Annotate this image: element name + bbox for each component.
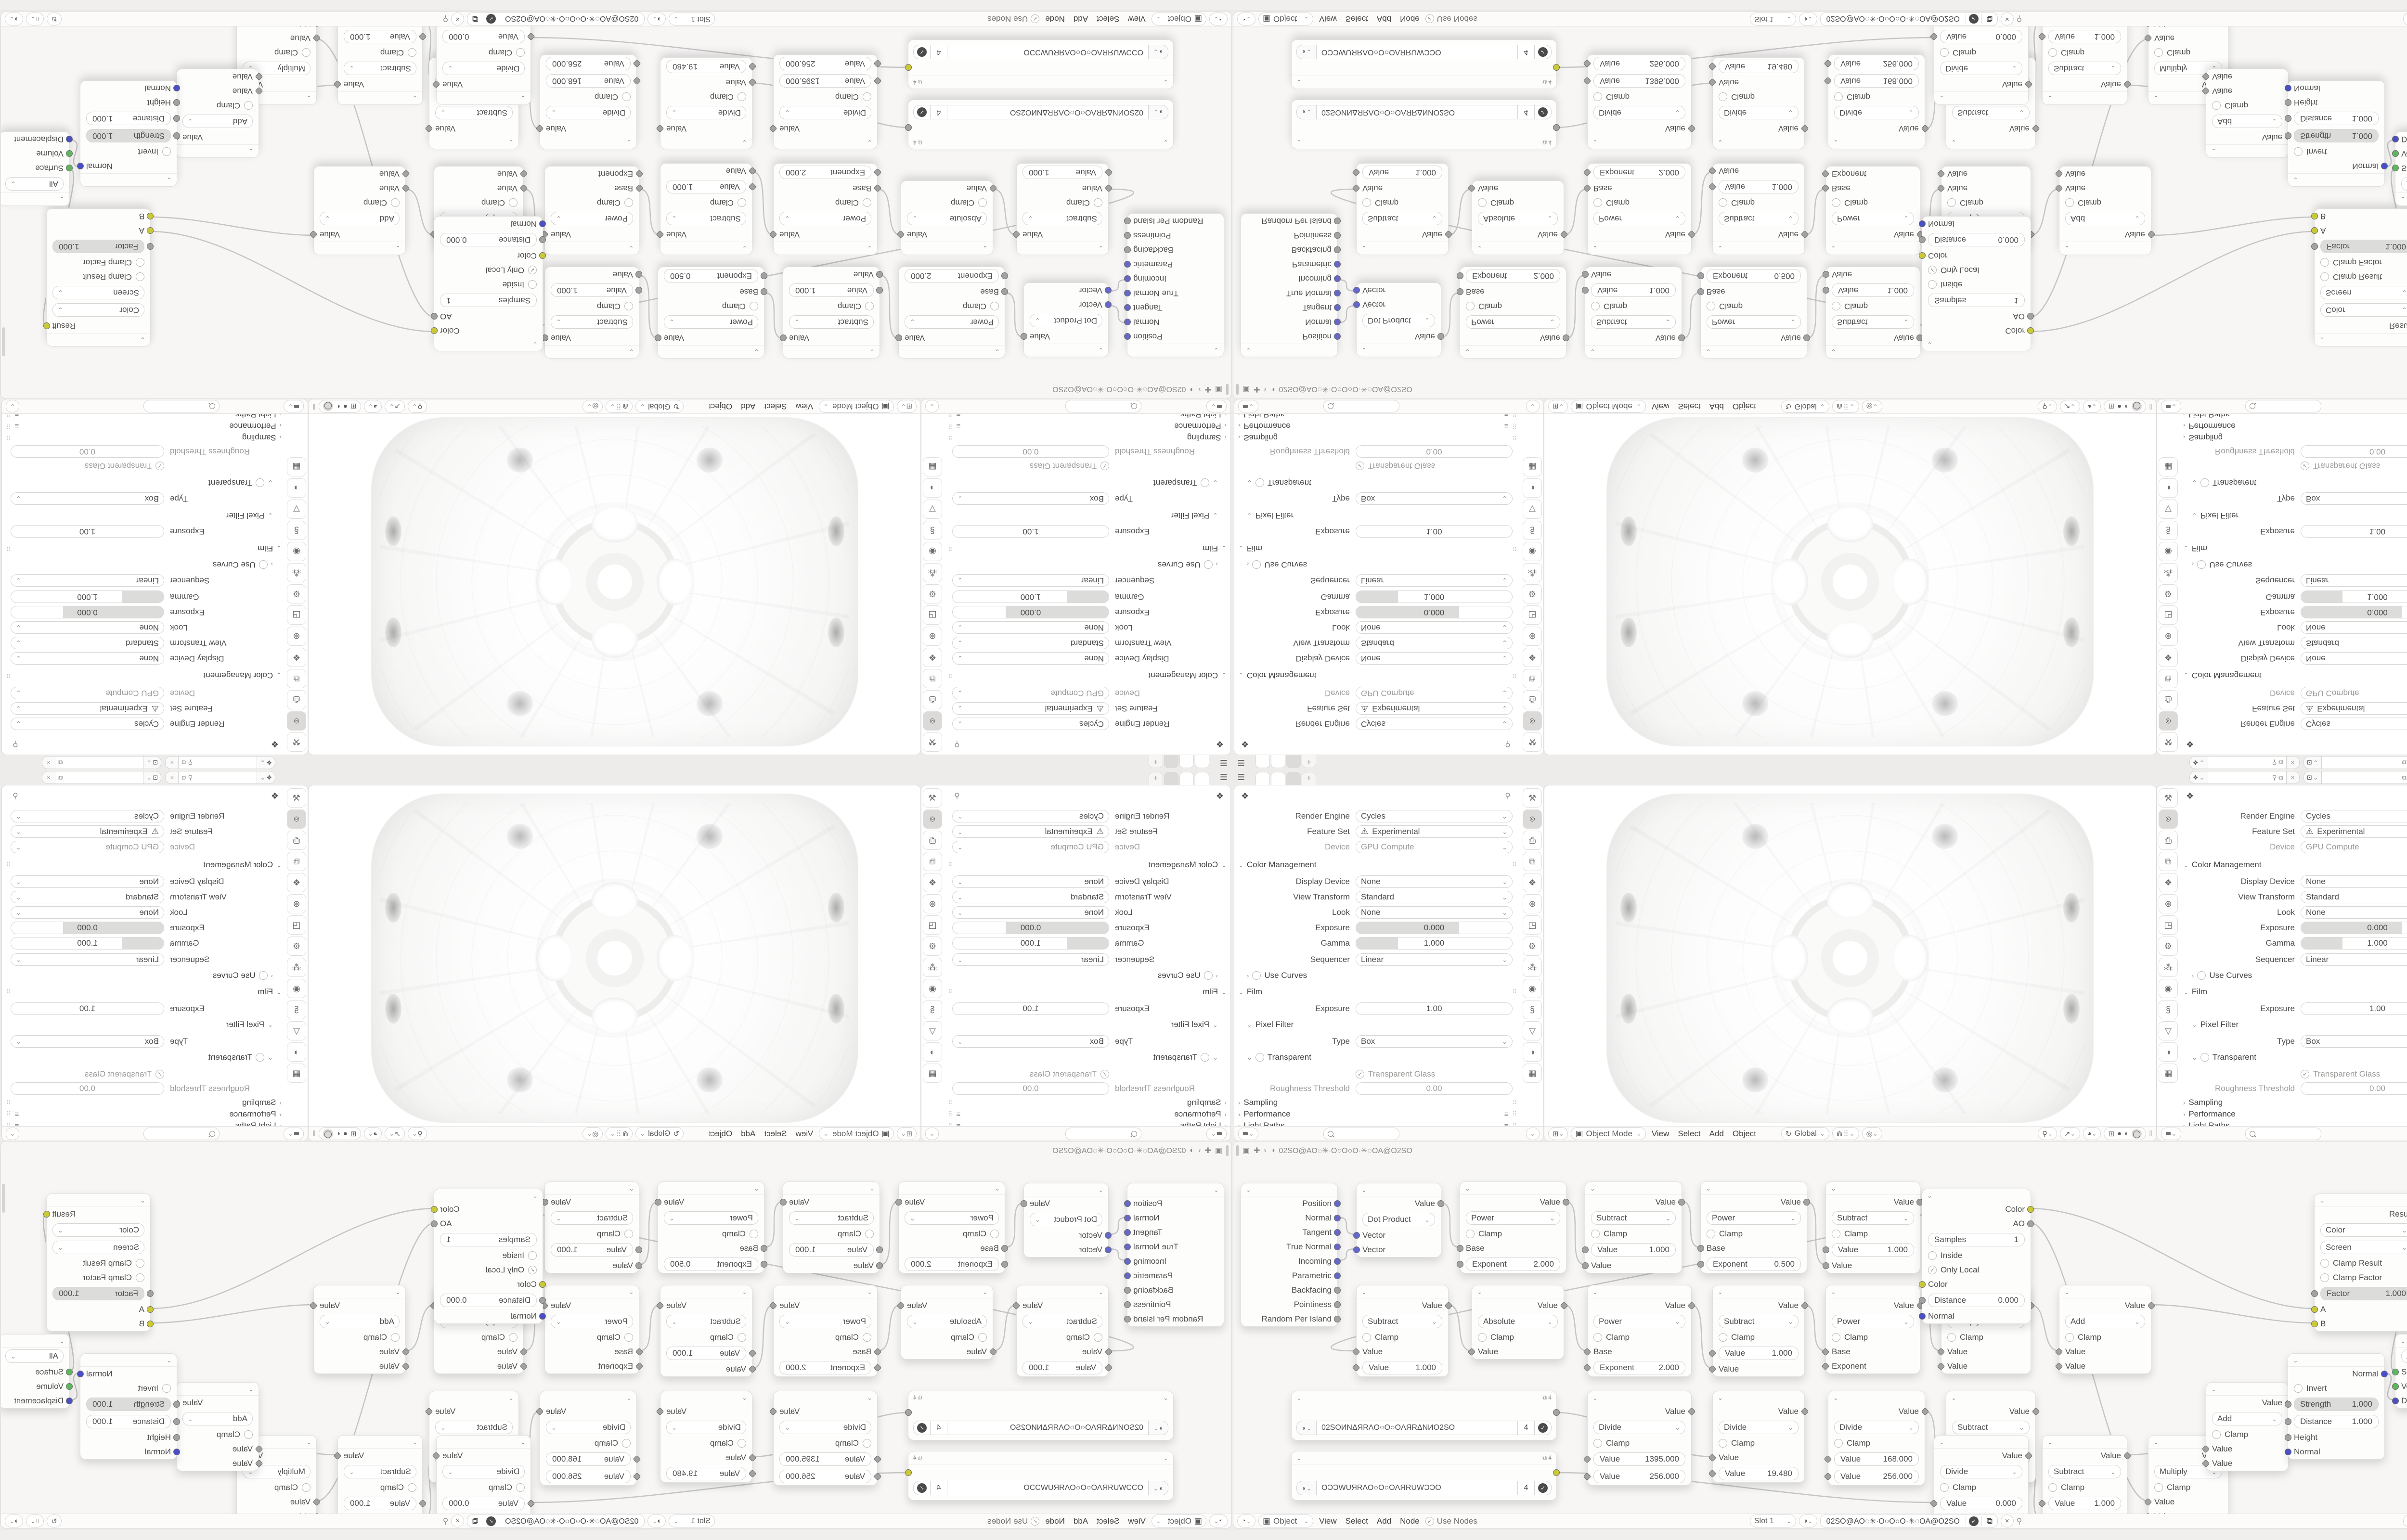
menu-node[interactable]: Node [1042, 14, 1068, 24]
node-collapse-icon[interactable]: ⌄ [869, 1185, 875, 1192]
render-engine-select[interactable]: Cycles⌄ [952, 718, 1109, 730]
node-math-divide-2[interactable]: ⌄ValueDivide⌄ClampValueValue19.480 [660, 57, 752, 149]
properties-tab-scene[interactable]: ❖ [923, 648, 942, 667]
properties-tab-render[interactable]: ⌾ [1523, 809, 1542, 829]
add-workspace-button[interactable]: + [1302, 755, 1316, 768]
value-field[interactable]: Factor1.000 [52, 240, 144, 253]
socket-value-left[interactable] [1697, 288, 1704, 295]
proportional-editing-button[interactable]: ◎⌄ [1862, 400, 1882, 413]
use-nodes-checkbox[interactable] [1425, 15, 1434, 24]
clamp-checkbox[interactable] [1832, 1333, 1840, 1342]
transparent-checkbox[interactable] [256, 478, 264, 487]
socket-value-left[interactable] [633, 1473, 641, 1481]
gizmos-button[interactable]: ↗⌄ [2060, 1127, 2080, 1140]
clamp-checkbox[interactable] [1466, 302, 1475, 310]
snapping-button[interactable]: ⌗⌄ [26, 13, 44, 26]
socket-vector-right[interactable] [1334, 333, 1341, 340]
clamp-checkbox[interactable] [863, 1439, 871, 1448]
fake-user-shield-button[interactable]: ✓ [917, 47, 927, 57]
socket-value-right[interactable] [656, 1302, 664, 1310]
node-collapse-icon[interactable]: ⌄ [1831, 349, 1836, 355]
socket-value-right[interactable] [1553, 1409, 1560, 1416]
clamp-checkbox[interactable] [622, 1439, 631, 1448]
socket-normal-left[interactable] [2392, 1398, 2399, 1404]
filter-button[interactable]: ⌄ [1206, 1128, 1227, 1140]
node-math-absolute[interactable]: ⌄ValueAbsolute⌄ClampValue [901, 180, 993, 255]
socket-green-left[interactable] [66, 150, 73, 157]
socket-value-left[interactable] [1822, 184, 1830, 192]
operation-select[interactable]: Divide⌄ [1719, 1421, 1799, 1434]
gamma-slider[interactable]: 1.000 [1356, 937, 1513, 950]
properties-tab-material[interactable]: ◑ [1523, 478, 1542, 498]
pixel-filter-panel[interactable]: ⌄Pixel Filter [2183, 509, 2407, 522]
socket-value-left[interactable] [1824, 1455, 1832, 1463]
unlink-material-button[interactable]: × [2001, 1514, 2014, 1527]
socket-value-right[interactable] [1124, 218, 1131, 224]
performance-panel[interactable]: ›Performance≡⠿ [2183, 1109, 2407, 1119]
properties-tab-view-layer[interactable]: ⧉ [1523, 669, 1542, 688]
socket-value-left[interactable] [1582, 1246, 1589, 1253]
socket-color-right[interactable] [43, 1211, 50, 1218]
shader-type-select[interactable]: ▣Object⌄ [1152, 1514, 1206, 1527]
use-curves-checkbox[interactable] [1204, 971, 1213, 980]
clamp-checkbox[interactable] [2212, 1430, 2221, 1439]
node-math-subtract-6[interactable]: ⌄ValueSubtract⌄ClampValue1.000Value [337, 13, 423, 105]
view-layer-selector[interactable]: ⊡⌄ ⧉ × [42, 757, 161, 769]
operation-select[interactable]: Divide⌄ [1940, 62, 2022, 75]
mode-select[interactable]: ▣Object Mode⌄ [819, 1127, 893, 1140]
node-vector-math-dot-product[interactable]: ⌄ValueDot Product⌄VectorVector [1023, 282, 1109, 357]
clamp-checkbox[interactable] [2154, 48, 2163, 57]
properties-tab-output[interactable]: ⎙ [1523, 831, 1542, 850]
node-collapse-icon[interactable]: ⌄ [412, 1439, 417, 1445]
node-math-power-3[interactable]: ⌄ValuePower⌄ClampBaseExponent2.000 [1587, 1285, 1692, 1377]
fake-user-shield-button[interactable]: ✓ [486, 1516, 496, 1526]
properties-tab-object[interactable]: ◳ [923, 605, 942, 625]
operation-select[interactable]: Subtract⌄ [1022, 1315, 1102, 1328]
properties-tab-active-tool[interactable]: ⚒ [2159, 732, 2178, 752]
socket-vector-left[interactable] [1353, 301, 1360, 308]
display-device-select[interactable]: None⌄ [1356, 652, 1513, 665]
properties-tab-scene[interactable]: ❖ [2159, 648, 2178, 667]
socket-vector-right[interactable] [1124, 290, 1131, 296]
node-group-selector[interactable]: ◑⌄02SOИNΔЯRΛO○O○OΛЯRΔNИO2SO4✓ [913, 1421, 1168, 1435]
node-collapse-icon[interactable]: ⌄ [626, 140, 632, 146]
node-math-divide-3[interactable]: ⌄ValueDivide⌄ClampValue168.000Value256.0… [540, 1391, 637, 1486]
node-collapse-icon[interactable]: ⌄ [754, 349, 759, 355]
socket-green-left[interactable] [66, 1369, 73, 1375]
clamp-checkbox[interactable] [1947, 198, 1956, 207]
operation-select[interactable]: Add⌄ [2212, 1412, 2282, 1425]
properties-tab-render[interactable]: ⌾ [2159, 711, 2178, 731]
node-vector-math-dot-product[interactable]: ⌄ValueDot Product⌄VectorVector [1356, 1183, 1441, 1258]
value-field[interactable]: Value1.000 [789, 1243, 874, 1257]
properties-tab-object-data[interactable]: ▽ [923, 500, 942, 519]
node-ambient-occlusion[interactable]: ⌄ColorAOSamples1InsideOnly LocalColorDis… [434, 1189, 543, 1324]
transparent-checkbox[interactable] [1201, 478, 1209, 487]
socket-value-left[interactable] [874, 168, 882, 177]
menu-add[interactable]: Add [1707, 402, 1727, 411]
properties-tab-scene[interactable]: ❖ [2159, 873, 2178, 892]
shader-type-select[interactable]: ▣Object⌄ [1258, 1514, 1313, 1527]
menu-select[interactable]: Select [1675, 1129, 1703, 1139]
socket-color-left[interactable] [539, 252, 546, 259]
clamp-checkbox[interactable] [1478, 1333, 1487, 1342]
value-field[interactable]: Exponent0.500 [664, 269, 758, 282]
properties-tab-texture[interactable]: ▦ [2159, 457, 2178, 476]
properties-search-input[interactable] [1065, 400, 1141, 413]
invert-checkbox[interactable] [2294, 147, 2303, 156]
node-collapse-icon[interactable]: ⌄ [1833, 1395, 1838, 1401]
node-collapse-icon[interactable]: ⌄ [1163, 1395, 1168, 1401]
properties-tab-physics[interactable]: ◉ [1523, 542, 1542, 561]
node-ambient-occlusion[interactable]: ⌄ColorAOSamples1InsideOnly LocalColorDis… [434, 216, 543, 351]
socket-value-left[interactable] [876, 1262, 883, 1269]
socket-value-left[interactable] [876, 1246, 883, 1253]
clamp-checkbox[interactable] [2065, 1333, 2074, 1342]
operation-select[interactable]: Divide⌄ [1834, 1421, 1919, 1434]
gamma-slider[interactable]: 1.000 [2301, 590, 2407, 603]
use-curves-checkbox[interactable] [259, 560, 268, 569]
node-collapse-icon[interactable]: ⌄ [2153, 1439, 2159, 1445]
properties-tab-modifiers[interactable]: ⚙ [2159, 584, 2178, 603]
node-math-subtract-4[interactable]: ⌄ValueSubtract⌄ClampValue1.000Value [1712, 163, 1805, 255]
exposure-slider[interactable]: 0.000 [11, 606, 164, 618]
snapping-button[interactable]: ⋒⁞⁞⌄ [606, 400, 633, 413]
socket-value-left[interactable] [2038, 1500, 2046, 1508]
gamma-slider[interactable]: 1.000 [11, 590, 164, 603]
value-field[interactable]: Exponent2.000 [1593, 1361, 1685, 1374]
transparent-panel[interactable]: ⌄Transparent [6, 476, 282, 489]
editor-type-button[interactable]: ⊞⌄ [1548, 1127, 1568, 1140]
properties-tab-constraints[interactable]: § [923, 1000, 942, 1019]
film-exposure-field[interactable]: 1.00 [952, 525, 1109, 538]
value-field[interactable]: Value1.000 [1591, 1243, 1676, 1257]
menu-add[interactable]: Add [1071, 14, 1091, 24]
pixel-filter-panel[interactable]: ⌄Pixel Filter [947, 509, 1227, 522]
menu-object[interactable]: Object [706, 1129, 735, 1139]
only-local-checkbox[interactable] [528, 266, 537, 274]
pin-icon[interactable]: ⚲ [2017, 1516, 2022, 1526]
node-math-add-1[interactable]: ⌄ValueAdd⌄ClampValueValue [313, 1285, 406, 1374]
socket-value-left[interactable] [749, 78, 757, 87]
properties-tab-particles[interactable]: ⁂ [2159, 563, 2178, 582]
feature-set-select[interactable]: ⚠Experimental⌄ [952, 825, 1109, 838]
socket-value-left[interactable] [749, 167, 757, 175]
socket-value-left[interactable] [1582, 287, 1589, 294]
value-field[interactable]: Distance0.000 [1928, 1294, 2025, 1307]
socket-vector-right[interactable] [1124, 333, 1131, 340]
light-paths-panel[interactable]: ›Light Paths≡⠿ [2183, 1120, 2407, 1126]
roughness-threshold-field[interactable]: 0.00 [11, 1082, 164, 1095]
socket-vector-right[interactable] [1334, 261, 1341, 268]
properties-tab-render[interactable]: ⌾ [923, 711, 942, 731]
properties-tab-texture[interactable]: ▦ [923, 457, 942, 476]
socket-value-left[interactable] [1697, 272, 1704, 279]
node-collapse-icon[interactable]: ⌄ [412, 95, 417, 102]
node-collapse-icon[interactable]: ⌄ [1246, 1187, 1251, 1193]
operation-select[interactable]: Add⌄ [320, 1315, 400, 1328]
display-device-select[interactable]: None⌄ [952, 652, 1109, 665]
copy-material-button[interactable]: ⧉ [1981, 1516, 1997, 1526]
filter-button[interactable]: ⌄ [1238, 1128, 1258, 1140]
socket-value-right[interactable] [656, 125, 664, 133]
socket-value-right[interactable] [1801, 1302, 1809, 1310]
node-math-add-2[interactable]: ⌄ValueAdd⌄ClampValueValue [2206, 1382, 2289, 1471]
node-collapse-icon[interactable]: ⌄ [867, 1289, 872, 1295]
socket-value-left[interactable] [173, 115, 180, 122]
value-field[interactable]: Distance1.000 [86, 1415, 171, 1428]
socket-value-left[interactable] [874, 184, 882, 192]
properties-options-button[interactable]: ⌄ [1526, 400, 1540, 413]
socket-value-left[interactable] [1708, 78, 1717, 87]
value-field[interactable]: Value0.000 [442, 30, 525, 43]
socket-value-left[interactable] [635, 184, 644, 192]
film-exposure-field[interactable]: 1.00 [11, 525, 164, 538]
socket-value-left[interactable] [635, 1246, 642, 1253]
preset-list-icon[interactable]: ≡ [957, 422, 961, 430]
node-node-group-2[interactable]: ⌄⧉ 4◑⌄OƆƆWUЯRΛO○O○OΛЯRUWƆƆO4✓ [908, 39, 1174, 89]
operation-select[interactable]: All⌄ [5, 177, 64, 191]
fake-user-shield-button[interactable]: ✓ [1538, 1423, 1548, 1433]
value-field[interactable]: Value256.000 [1593, 57, 1685, 70]
view-transform-select[interactable]: Standard⌄ [11, 637, 164, 649]
node-collapse-icon[interactable]: ⌄ [1939, 1439, 1944, 1445]
properties-tab-object[interactable]: ◳ [1523, 915, 1542, 935]
menu-node[interactable]: Node [1397, 14, 1423, 24]
exposure-slider[interactable]: 0.000 [2301, 606, 2407, 618]
clamp-checkbox[interactable] [408, 48, 416, 57]
browse-material-button[interactable]: ◑⌄ [647, 1514, 666, 1527]
socket-vector-right[interactable] [1334, 290, 1341, 296]
properties-tab-active-tool[interactable]: ⚒ [287, 788, 306, 808]
operation-select[interactable]: Subtract⌄ [344, 1465, 416, 1478]
value-field[interactable]: Exponent2.000 [905, 269, 999, 282]
socket-value-right[interactable] [2148, 1302, 2156, 1310]
view-layer-selector[interactable]: ⊡⌄ ⧉ × [42, 771, 161, 783]
clamp-checkbox[interactable] [750, 302, 758, 310]
clamp-checkbox[interactable] [1591, 1230, 1600, 1238]
operation-select[interactable]: Divide⌄ [779, 106, 871, 119]
clamp-checkbox[interactable] [1832, 198, 1840, 207]
node-collapse-icon[interactable]: ⌄ [1718, 1289, 1723, 1295]
operation-select[interactable]: Divide⌄ [1834, 106, 1919, 119]
node-collapse-icon[interactable]: ⌄ [983, 1289, 988, 1295]
node-collapse-icon[interactable]: ⌄ [1214, 347, 1219, 354]
browse-material-button[interactable]: ◑⌄ [1799, 1514, 1817, 1527]
properties-tab-active-tool[interactable]: ⚒ [2159, 788, 2178, 808]
properties-tab-scene[interactable]: ❖ [1523, 648, 1542, 667]
use-curves-panel[interactable]: ›Use Curves [947, 558, 1227, 571]
value-field[interactable]: Value1.000 [551, 283, 633, 297]
render-engine-select[interactable]: Cycles⌄ [1356, 810, 1513, 822]
color-management-panel[interactable]: ⌄Color Management⠿ [1238, 669, 1517, 681]
show-gizmo-button[interactable]: ⚲⌄ [2038, 1127, 2057, 1140]
socket-value-left[interactable] [1457, 288, 1463, 295]
socket-value-left[interactable] [2285, 1401, 2291, 1408]
filter-button[interactable]: ⌄ [284, 1128, 304, 1140]
socket-value-right[interactable] [431, 313, 438, 320]
clamp-factor-checkbox[interactable] [2320, 1273, 2329, 1282]
properties-tab-render[interactable]: ⌾ [923, 809, 942, 829]
node-collapse-icon[interactable]: ⌄ [1590, 1185, 1595, 1192]
socket-value-left[interactable] [1823, 271, 1829, 278]
value-field[interactable]: Strength1.000 [2294, 1398, 2379, 1411]
socket-value-left[interactable] [147, 1290, 154, 1297]
color-management-panel[interactable]: ⌄Color Management⠿ [6, 859, 282, 871]
use-curves-checkbox[interactable] [2197, 971, 2206, 980]
socket-value-right[interactable] [425, 1408, 433, 1416]
node-math-power-2[interactable]: ⌄ValuePower⌄ClampBaseExponent0.500 [658, 1181, 764, 1273]
node-math-power-4[interactable]: ⌄ValuePower⌄ClampBaseExponent [544, 1285, 639, 1374]
shading-rendered-icon[interactable]: ◯ [2132, 402, 2142, 411]
operation-select[interactable]: Divide⌄ [546, 1421, 631, 1434]
node-collapse-icon[interactable]: ⌄ [742, 1395, 747, 1401]
properties-tab-material[interactable]: ◑ [2159, 1042, 2178, 1062]
shading-rendered-icon[interactable]: ◯ [323, 402, 333, 411]
look-select[interactable]: None⌄ [952, 621, 1109, 634]
menu-hamburger-icon[interactable]: ☰ [1220, 757, 1228, 768]
unlink-scene-button[interactable]: × [2287, 771, 2300, 784]
properties-tab-physics[interactable]: ◉ [2159, 542, 2178, 561]
clamp-checkbox[interactable] [990, 1230, 999, 1238]
node-material-output[interactable]: ⌄All⌄SurfaceVolumeDisplacement [1, 131, 70, 206]
value-field[interactable]: Value0.000 [442, 1497, 525, 1510]
preset-list-icon[interactable]: ≡ [1504, 1122, 1509, 1127]
clamp-checkbox[interactable] [865, 1230, 874, 1238]
use-nodes-checkbox[interactable] [1425, 1517, 1434, 1526]
node-collapse-icon[interactable]: ⌄ [1831, 245, 1836, 252]
socket-color-left[interactable] [2311, 1306, 2318, 1313]
pixel-filter-panel[interactable]: ⌄Pixel Filter [2183, 1018, 2407, 1031]
operation-select[interactable]: Subtract⌄ [1362, 212, 1442, 225]
socket-value-left[interactable] [989, 1348, 997, 1356]
node-collapse-icon[interactable]: ⌄ [167, 177, 172, 183]
operation-select[interactable]: Power⌄ [1593, 212, 1685, 225]
shader-type-select[interactable]: ▣Object⌄ [1152, 13, 1206, 26]
node-group-name[interactable]: OƆƆWUЯRΛO○O○OΛЯRUWƆƆO [1317, 1481, 1518, 1495]
socket-value-left[interactable] [1001, 288, 1008, 295]
editor-type-button[interactable]: ⊞⌄ [897, 400, 917, 413]
node-group-selector[interactable]: ◑⌄OƆƆWUЯRΛO○O○OΛЯRUWƆƆO4✓ [1296, 1481, 1552, 1495]
shading-rendered-icon[interactable]: ◯ [323, 1129, 333, 1139]
socket-normal-left[interactable] [1919, 220, 1926, 227]
node-collapse-icon[interactable]: ⌄ [1592, 1289, 1598, 1295]
value-field[interactable]: Value0.000 [1940, 1497, 2022, 1510]
operation-select[interactable]: Subtract⌄ [344, 62, 416, 75]
socket-value-right[interactable] [897, 231, 905, 239]
socket-value-right[interactable] [1803, 1199, 1810, 1206]
properties-tab-particles[interactable]: ⁂ [923, 958, 942, 977]
socket-value-right[interactable] [1688, 1302, 1696, 1310]
pin-icon[interactable]: ⚲ [1505, 739, 1511, 749]
socket-value-left[interactable] [2285, 1418, 2291, 1425]
roughness-threshold-field[interactable]: 0.00 [952, 1082, 1109, 1095]
socket-value-left[interactable] [1697, 1261, 1704, 1268]
performance-panel[interactable]: ›Performance≡⠿ [1238, 421, 1517, 431]
operation-select[interactable]: Power⌄ [779, 1315, 871, 1328]
socket-value-left[interactable] [2285, 132, 2291, 139]
properties-tab-scene[interactable]: ❖ [287, 648, 306, 667]
clamp-factor-checkbox[interactable] [2320, 258, 2329, 267]
socket-value-left[interactable] [402, 1348, 410, 1356]
node-collapse-icon[interactable]: ⌄ [867, 1395, 872, 1401]
clamp-checkbox[interactable] [1832, 1230, 1840, 1238]
clamp-checkbox[interactable] [2154, 1483, 2163, 1492]
properties-search-input[interactable] [1065, 1128, 1141, 1140]
socket-value-left[interactable] [1937, 170, 1945, 178]
pin-icon[interactable]: ⚲ [188, 759, 193, 767]
socket-value-right[interactable] [1563, 334, 1569, 341]
node-bump[interactable]: ⌄NormalInvertStrength1.000Distance1.000H… [2288, 80, 2385, 187]
operation-select[interactable]: Power⌄ [664, 1211, 758, 1225]
socket-normal-left[interactable] [1919, 1313, 1926, 1320]
operation-select[interactable]: Power⌄ [1466, 1211, 1560, 1225]
socket-value-left[interactable] [2055, 1348, 2063, 1356]
socket-value-right[interactable] [1437, 333, 1444, 340]
menu-add[interactable]: Add [1071, 1516, 1091, 1526]
properties-tab-constraints[interactable]: § [2159, 521, 2178, 540]
socket-value-left[interactable] [761, 288, 767, 295]
inside-checkbox[interactable] [528, 1251, 537, 1260]
value-field[interactable]: Exponent2.000 [779, 166, 871, 179]
socket-value-right[interactable] [1334, 232, 1341, 239]
clamp-checkbox[interactable] [1834, 1439, 1843, 1448]
socket-value-right[interactable] [1563, 1199, 1569, 1206]
socket-normal-left[interactable] [66, 136, 73, 142]
fake-user-shield-button[interactable]: ✓ [1538, 47, 1548, 57]
socket-value-left[interactable] [2144, 34, 2152, 42]
socket-value-left[interactable] [1822, 1348, 1830, 1356]
socket-color-left[interactable] [2311, 1321, 2318, 1327]
properties-tab-active-tool[interactable]: ⚒ [1523, 788, 1542, 808]
fake-user-shield-button[interactable]: ✓ [486, 14, 496, 24]
socket-normal-right[interactable] [2381, 1371, 2388, 1377]
fake-user-shield-button[interactable]: ✓ [1538, 1483, 1548, 1493]
node-math-subtract-4[interactable]: ⌄ValueSubtract⌄ClampValue1.000Value [1712, 1285, 1805, 1377]
properties-tab-world[interactable]: ⊛ [923, 627, 942, 646]
filter-button[interactable]: ⌄ [2161, 1128, 2181, 1140]
value-field[interactable]: Strength1.000 [2294, 129, 2379, 142]
value-field[interactable]: Value1.000 [1832, 283, 1914, 297]
node-collapse-icon[interactable]: ⌄ [306, 95, 311, 102]
socket-value-right[interactable] [1678, 334, 1685, 341]
gamma-slider[interactable]: 1.000 [2301, 937, 2407, 950]
operation-select[interactable]: Dot Product⌄ [1362, 1213, 1435, 1226]
socket-value-left[interactable] [1583, 60, 1592, 68]
socket-normal-left[interactable] [66, 1398, 73, 1404]
socket-color-right[interactable] [2027, 327, 2034, 334]
clamp-checkbox[interactable] [2048, 1483, 2057, 1492]
workspace-tab-1[interactable] [1255, 772, 1270, 785]
workspace-tab-1[interactable] [1195, 755, 1209, 768]
socket-value-left[interactable] [1822, 1362, 1830, 1371]
properties-tab-render[interactable]: ⌾ [2159, 809, 2178, 829]
proportional-editing-button[interactable]: ◎⌄ [582, 400, 603, 413]
node-math-power-3[interactable]: ⌄ValuePower⌄ClampBaseExponent2.000 [773, 163, 878, 255]
node-ambient-occlusion[interactable]: ⌄ColorAOSamples1InsideOnly LocalColorDis… [1922, 1189, 2031, 1324]
clamp-checkbox[interactable] [624, 198, 633, 207]
menu-select[interactable]: Select [761, 1129, 789, 1139]
properties-search-input[interactable] [143, 1128, 220, 1140]
socket-value-left[interactable] [1697, 1245, 1704, 1252]
roughness-threshold-field[interactable]: 0.00 [1356, 1082, 1513, 1095]
device-select[interactable]: GPU Compute⌄ [11, 687, 164, 699]
pixel-filter-type-select[interactable]: Box⌄ [2301, 1035, 2407, 1048]
socket-color-left[interactable] [539, 1281, 546, 1288]
slot-select[interactable]: Slot 1⌄ [1750, 1514, 1796, 1527]
node-collapse-icon[interactable]: ⌄ [1927, 342, 1932, 348]
